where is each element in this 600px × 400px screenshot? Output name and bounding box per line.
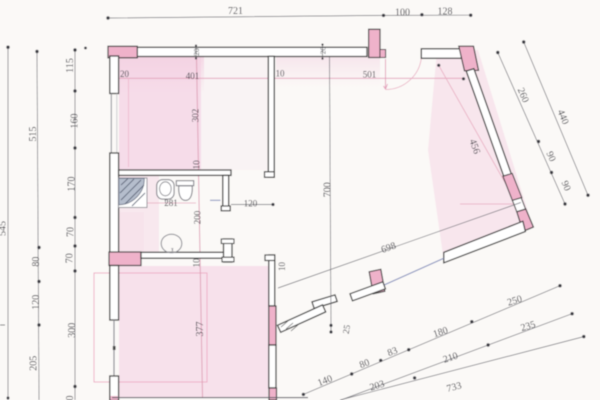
svg-text:160: 160	[70, 114, 81, 129]
svg-text:128: 128	[438, 7, 453, 18]
svg-text:10: 10	[277, 262, 287, 272]
svg-text:10: 10	[276, 69, 286, 79]
svg-text:80: 80	[31, 257, 42, 267]
svg-text:70: 70	[66, 227, 77, 237]
svg-text:120: 120	[244, 199, 258, 209]
svg-text:281: 281	[164, 198, 178, 208]
svg-text:545: 545	[0, 221, 9, 236]
svg-text:140: 140	[65, 396, 76, 400]
svg-text:205: 205	[29, 356, 40, 371]
svg-text:200: 200	[193, 210, 203, 224]
svg-text:10: 10	[192, 160, 202, 170]
svg-text:515: 515	[28, 127, 39, 142]
svg-text:721: 721	[228, 6, 243, 17]
svg-text:115: 115	[65, 58, 76, 73]
svg-text:100: 100	[395, 8, 410, 19]
svg-text:70: 70	[64, 253, 75, 263]
svg-text:170: 170	[66, 177, 77, 192]
svg-text:20: 20	[120, 69, 130, 79]
svg-text:401: 401	[186, 71, 200, 81]
svg-text:20: 20	[318, 47, 327, 55]
svg-text:300: 300	[67, 323, 78, 338]
svg-text:10: 10	[192, 258, 202, 268]
svg-text:700: 700	[323, 182, 334, 197]
svg-text:501: 501	[363, 70, 377, 80]
svg-text:302: 302	[191, 109, 201, 123]
svg-text:377: 377	[195, 322, 206, 337]
svg-text:120: 120	[31, 295, 42, 310]
svg-text:20: 20	[192, 48, 201, 56]
